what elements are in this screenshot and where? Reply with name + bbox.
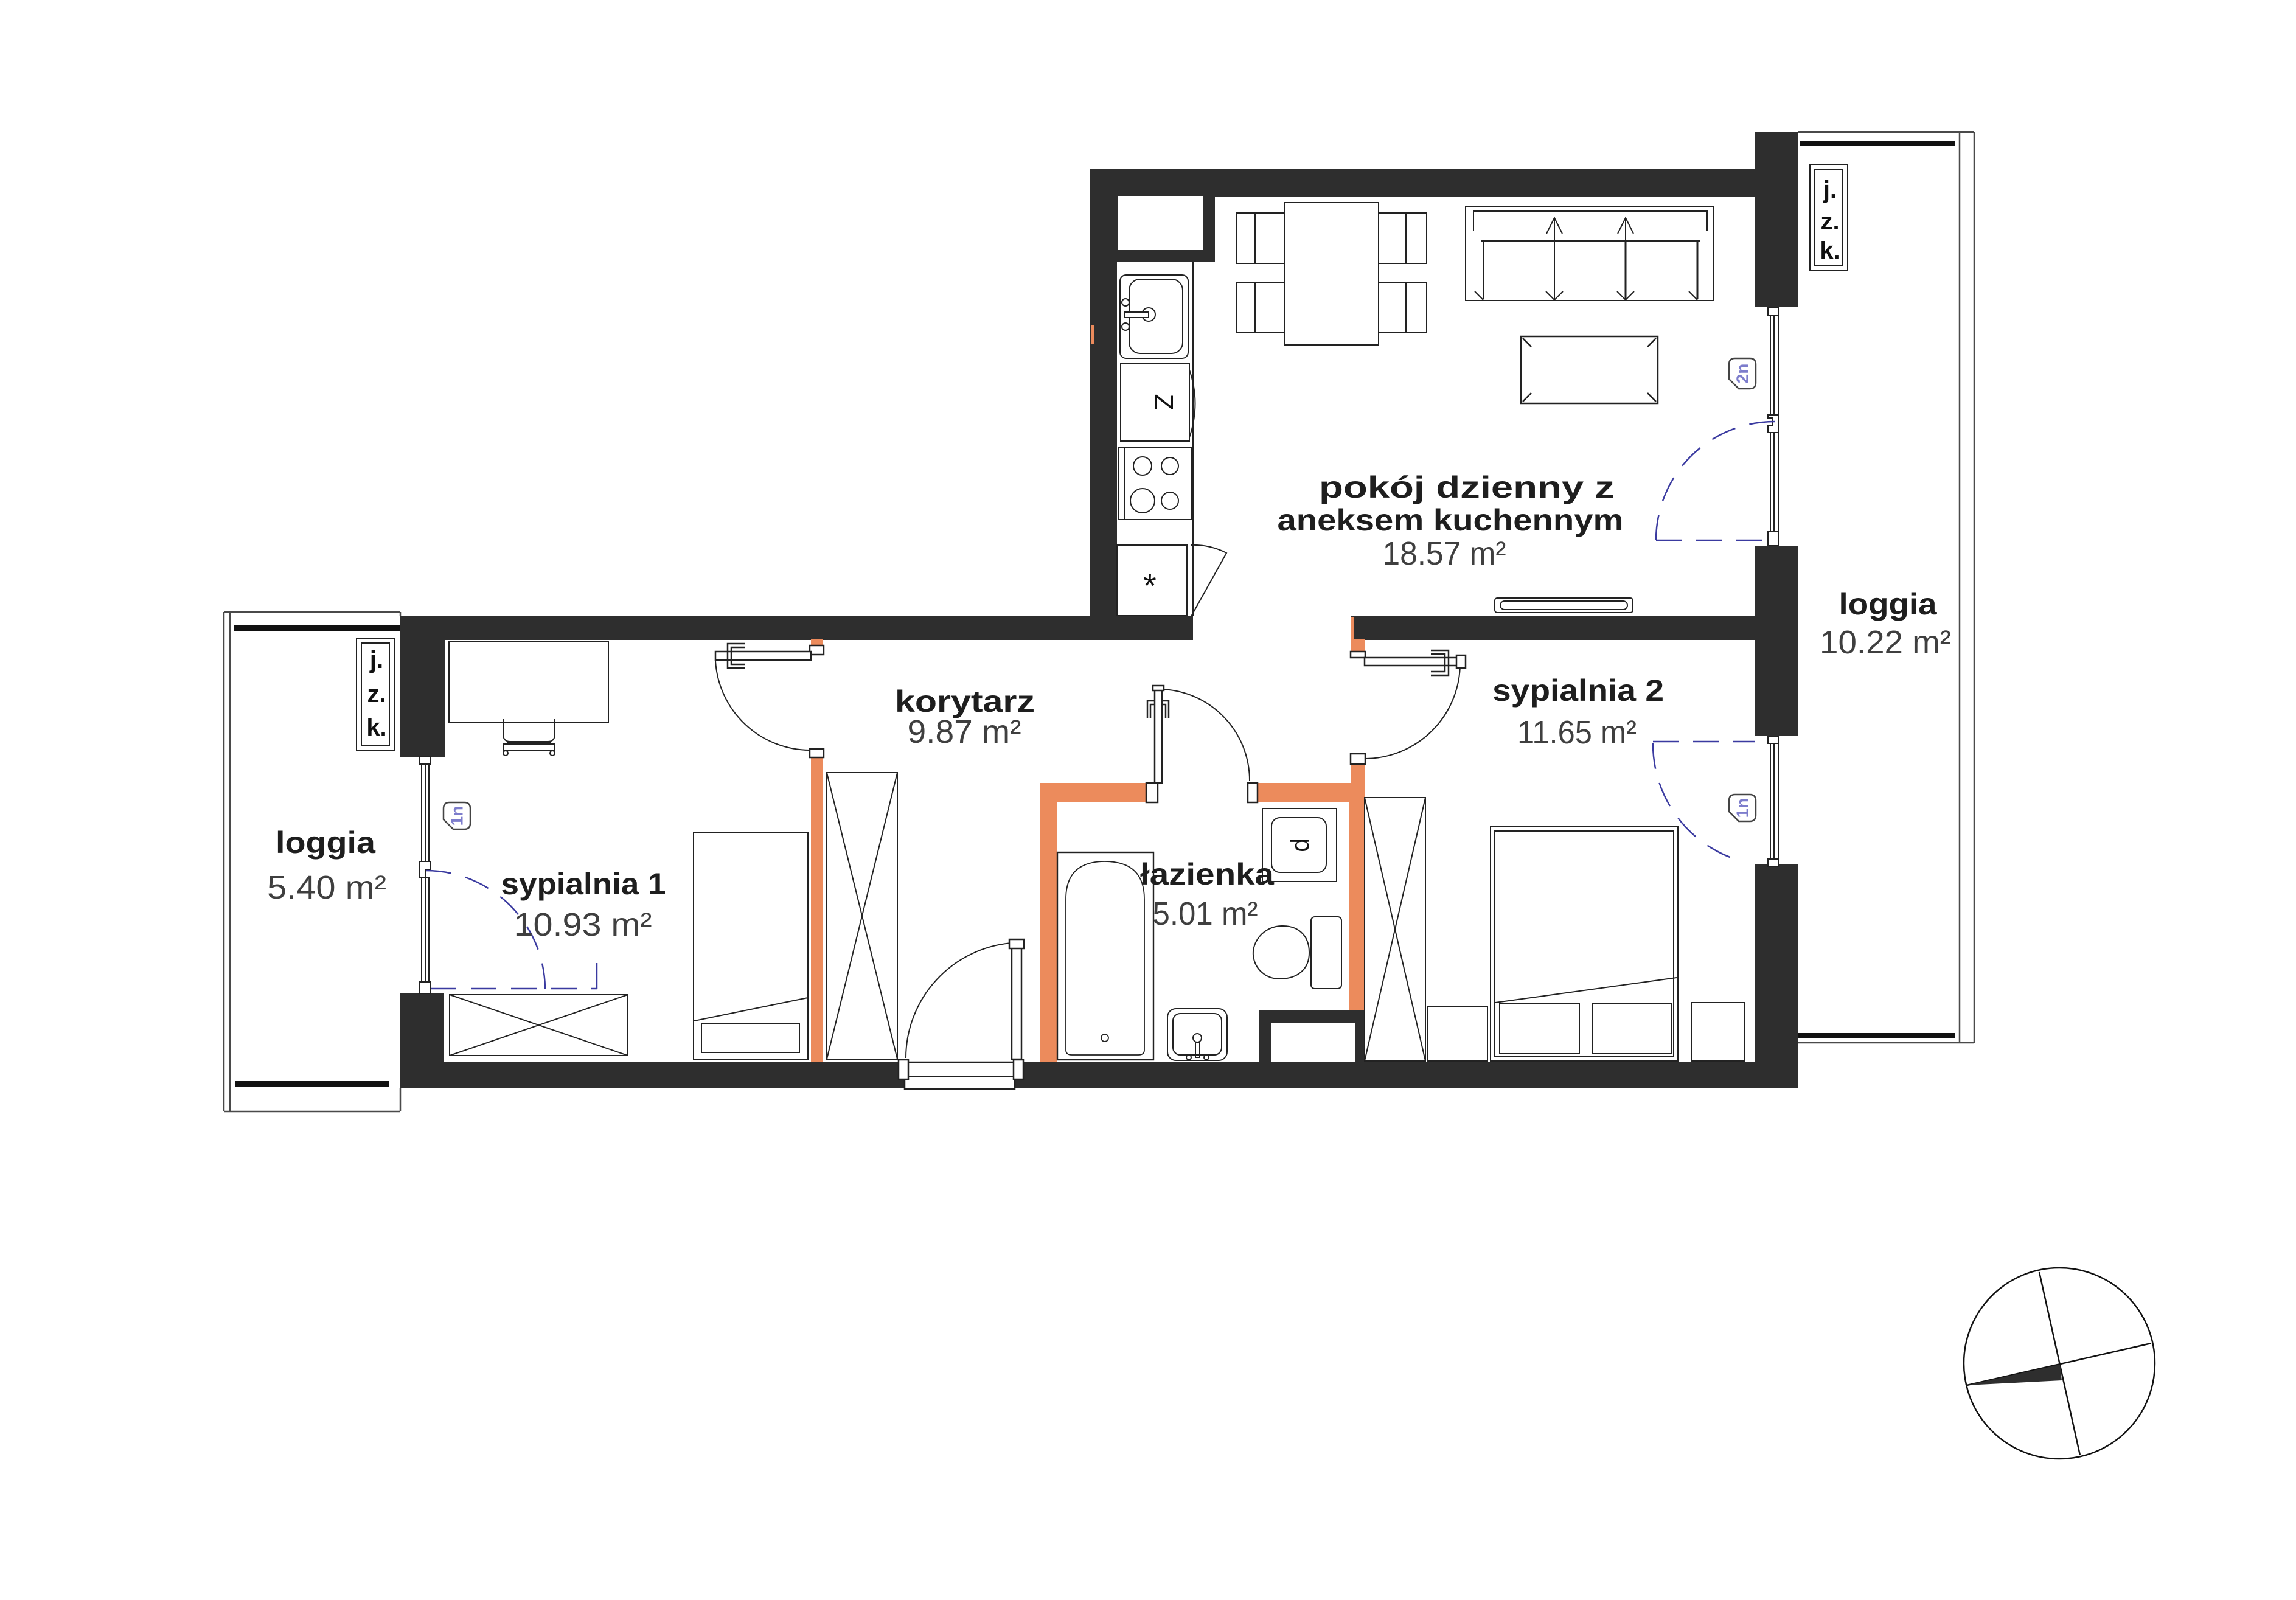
svg-text:Z: Z — [1149, 394, 1178, 411]
svg-text:loggia: loggia — [276, 826, 376, 860]
svg-text:sypialnia 2: sypialnia 2 — [1492, 673, 1664, 708]
svg-text:z.: z. — [1820, 208, 1839, 235]
svg-text:*: * — [1143, 566, 1157, 605]
svg-text:k.: k. — [366, 714, 386, 741]
svg-text:pokój dzienny z: pokój dzienny z — [1319, 470, 1615, 504]
svg-text:1n: 1n — [1733, 798, 1752, 818]
svg-text:sypialnia 1: sypialnia 1 — [501, 867, 666, 901]
svg-text:loggia: loggia — [1839, 587, 1938, 621]
svg-text:9.87 m²: 9.87 m² — [908, 714, 1021, 750]
svg-text:j.: j. — [369, 647, 383, 673]
svg-text:1n: 1n — [448, 806, 467, 826]
svg-text:2n: 2n — [1733, 364, 1752, 384]
svg-text:łazienka: łazienka — [1140, 857, 1275, 891]
svg-text:10.93 m²: 10.93 m² — [514, 906, 652, 943]
svg-text:5.40 m²: 5.40 m² — [267, 869, 386, 906]
svg-text:5.01 m²: 5.01 m² — [1153, 896, 1258, 932]
svg-text:18.57 m²: 18.57 m² — [1383, 535, 1506, 572]
svg-text:11.65 m²: 11.65 m² — [1517, 714, 1637, 751]
svg-text:z.: z. — [367, 681, 386, 708]
svg-text:j.: j. — [1823, 176, 1837, 203]
svg-text:aneksem kuchennym: aneksem kuchennym — [1278, 503, 1624, 537]
svg-text:k.: k. — [1820, 237, 1840, 264]
svg-text:10.22 m²: 10.22 m² — [1820, 624, 1951, 661]
svg-text:p: p — [1290, 838, 1318, 852]
